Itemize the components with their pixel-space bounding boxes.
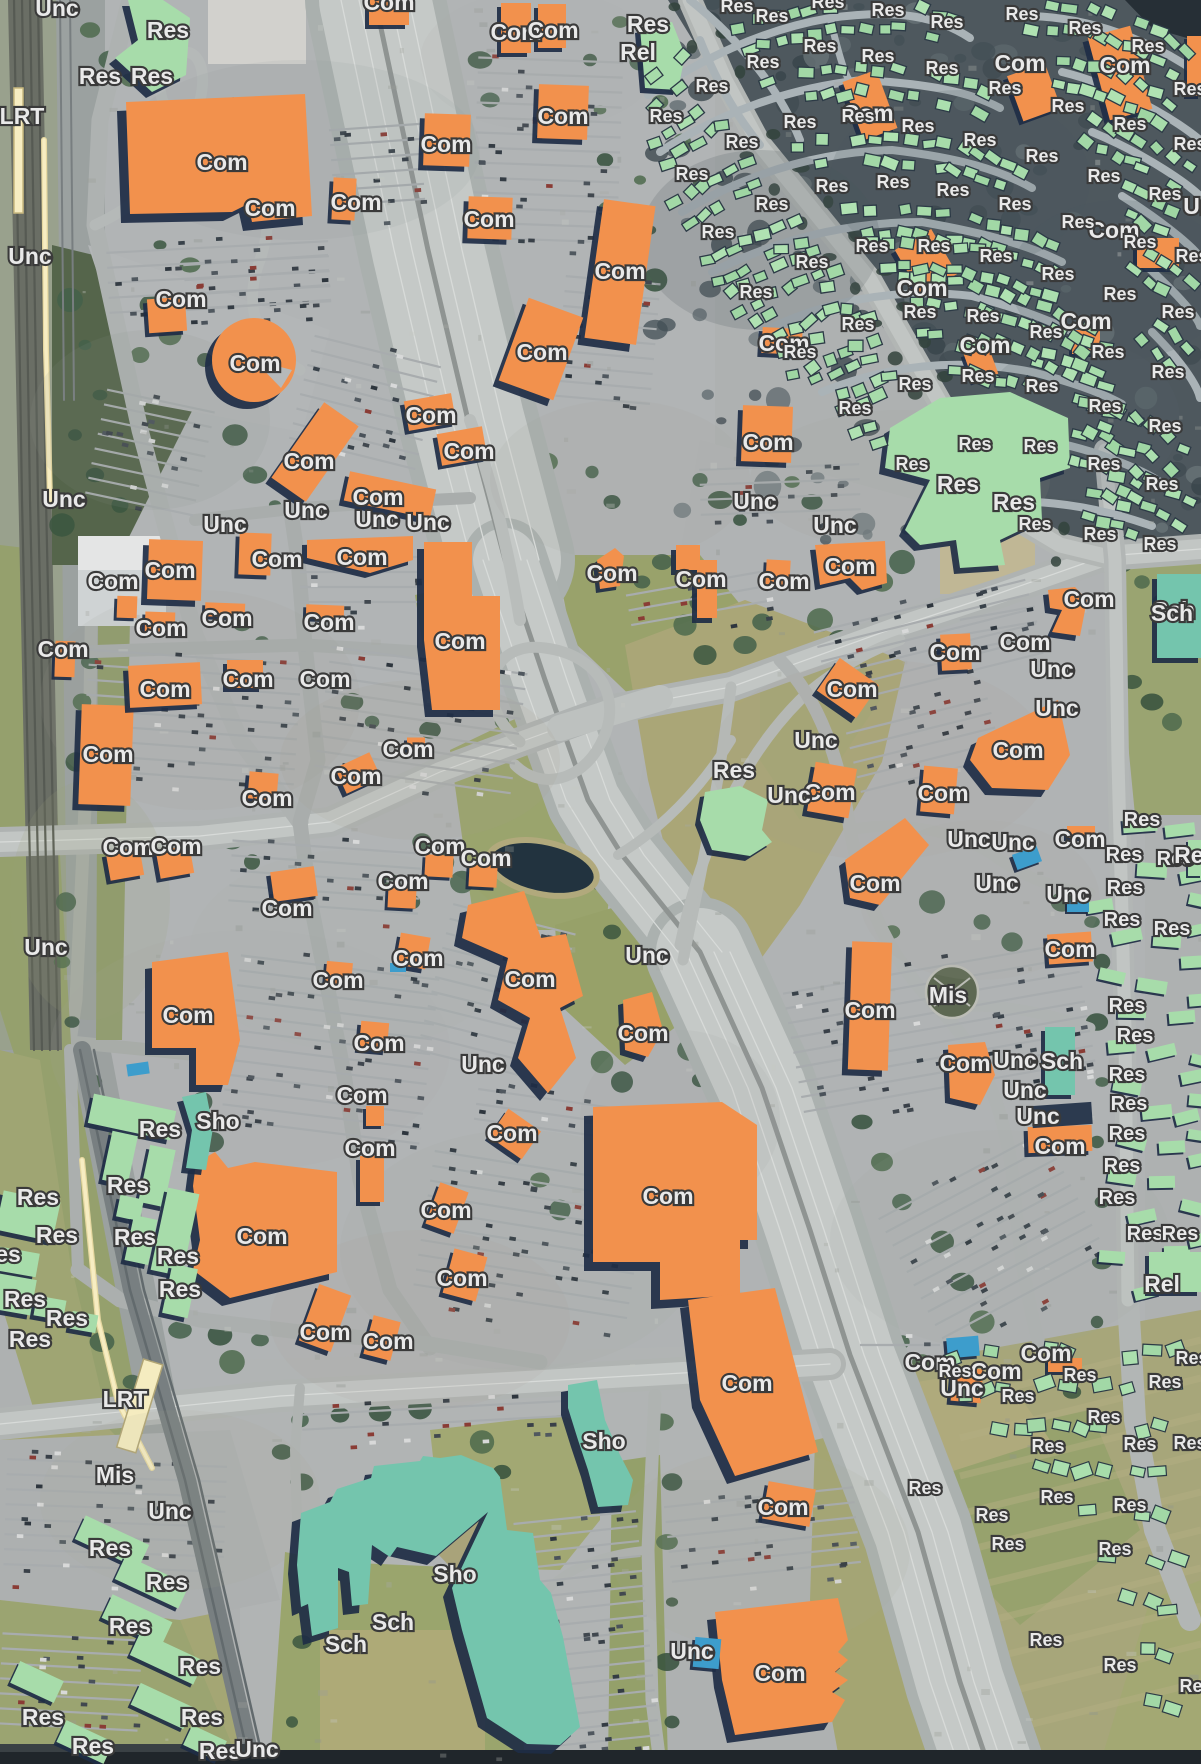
svg-text:Com: Com [135,615,186,641]
svg-text:Res: Res [838,398,871,418]
svg-text:Res: Res [1023,436,1056,456]
svg-text:Res: Res [1175,1348,1201,1368]
svg-text:Res: Res [1018,514,1051,534]
svg-text:Res: Res [1148,416,1181,436]
svg-text:LRT: LRT [103,1386,148,1412]
svg-text:Com: Com [139,676,190,702]
svg-text:Com: Com [420,1197,471,1223]
svg-text:Res: Res [1148,1372,1181,1392]
svg-text:Unc: Unc [733,488,777,514]
svg-text:Com: Com [37,636,88,662]
svg-text:Res: Res [89,1535,131,1561]
svg-text:Com: Com [758,568,809,594]
svg-text:Unc: Unc [24,934,68,960]
svg-text:Com: Com [241,785,292,811]
svg-text:Unc: Unc [461,1051,505,1077]
svg-text:Com: Com [742,429,793,455]
svg-text:Rel: Rel [620,39,656,65]
svg-text:Com: Com [414,833,465,859]
svg-text:Com: Com [1034,1133,1085,1159]
svg-text:Res: Res [783,112,816,132]
svg-text:Com: Com [150,833,201,859]
svg-text:Unc: Unc [203,511,247,537]
svg-text:Com: Com [516,339,567,365]
svg-text:Res: Res [1109,1064,1146,1086]
svg-text:Res: Res [1087,454,1120,474]
svg-text:Res: Res [861,46,894,66]
svg-text:Res: Res [1151,362,1184,382]
svg-text:Res: Res [701,222,734,242]
svg-text:Unc: Unc [991,829,1035,855]
svg-text:Res: Res [157,1243,199,1269]
svg-text:Com: Com [1020,1340,1071,1366]
svg-text:Com: Com [336,1082,387,1108]
svg-text:Unc: Unc [993,1047,1037,1073]
svg-text:Com: Com [303,609,354,635]
svg-text:Unc: Unc [947,826,991,852]
svg-text:Res: Res [1103,1655,1136,1675]
svg-text:Res: Res [871,0,904,20]
svg-text:Com: Com [144,557,195,583]
svg-text:Res: Res [993,489,1035,515]
svg-text:Com: Com [299,1319,350,1345]
svg-text:Mis: Mis [96,1462,134,1488]
svg-text:Unc: Unc [813,512,857,538]
svg-text:Com: Com [102,834,153,860]
svg-text:Unc: Unc [975,870,1019,896]
svg-text:Res: Res [841,106,874,126]
svg-text:Com: Com [201,605,252,631]
svg-text:Res: Res [1124,809,1161,831]
svg-text:Sho: Sho [196,1108,239,1134]
svg-text:Com: Com [87,568,138,594]
svg-text:Unc: Unc [8,243,52,269]
svg-text:Com: Com [251,546,302,572]
svg-text:Res: Res [131,63,173,89]
svg-text:Res: Res [1148,184,1181,204]
svg-text:Res: Res [1113,114,1146,134]
svg-text:Com: Com [377,868,428,894]
svg-text:Com: Com [642,1183,693,1209]
svg-text:Com: Com [222,666,273,692]
svg-text:Res: Res [1068,18,1101,38]
svg-text:Com: Com [992,737,1043,763]
svg-text:Com: Com [229,350,280,376]
svg-text:Res: Res [1025,376,1058,396]
svg-text:Com: Com [824,553,875,579]
svg-text:Unc: Unc [767,782,811,808]
svg-text:Sho: Sho [433,1561,476,1587]
svg-text:Unc: Unc [1030,656,1074,682]
svg-text:Com: Com [312,967,363,993]
svg-text:Res: Res [1087,166,1120,186]
svg-text:Res: Res [811,0,844,12]
svg-text:Res: Res [1104,909,1141,931]
svg-text:Unc: Unc [35,0,79,21]
svg-text:Res: Res [675,164,708,184]
svg-text:Com: Com [721,1370,772,1396]
svg-text:Res: Res [1131,36,1164,56]
svg-text:Res: Res [1162,1223,1199,1245]
svg-text:Res: Res [22,1704,64,1730]
svg-text:Res: Res [895,454,928,474]
svg-text:Res: Res [1025,146,1058,166]
svg-text:Res: Res [876,172,909,192]
svg-text:Res: Res [803,36,836,56]
svg-text:Com: Com [299,666,350,692]
svg-text:Res: Res [159,1276,201,1302]
svg-text:Res: Res [36,1222,78,1248]
svg-text:Res: Res [975,1505,1008,1525]
svg-text:Com: Com [420,131,471,157]
svg-text:Com: Com [504,966,555,992]
svg-text:Res: Res [1083,524,1116,544]
svg-text:Com: Com [959,332,1010,358]
svg-text:Unc: Unc [42,486,86,512]
svg-text:Unc: Unc [1003,1077,1047,1103]
svg-text:Com: Com [486,1120,537,1146]
svg-text:Com: Com [362,1328,413,1354]
svg-text:Res: Res [1098,1539,1131,1559]
svg-text:Res: Res [1029,322,1062,342]
svg-text:Res: Res [649,106,682,126]
svg-text:Com: Com [82,741,133,767]
svg-text:Res: Res [755,6,788,26]
svg-text:Res: Res [938,1361,971,1381]
svg-text:Res: Res [1143,534,1176,554]
svg-text:Res: Res [139,1116,181,1142]
svg-text:Res: Res [966,306,999,326]
svg-text:Res: Res [1040,1487,1073,1507]
svg-text:Res: Res [1109,1123,1146,1145]
svg-text:Rel: Rel [1174,842,1201,868]
svg-text:Res: Res [179,1653,221,1679]
svg-text:Res: Res [963,130,996,150]
svg-text:Res: Res [1154,918,1191,940]
svg-text:Com: Com [537,103,588,129]
svg-text:Com: Com [436,1265,487,1291]
svg-text:Com: Com [392,945,443,971]
svg-text:Res: Res [783,342,816,362]
svg-text:Res: Res [1061,212,1094,232]
svg-text:Unc: Unc [235,1736,279,1762]
svg-text:Res: Res [1103,284,1136,304]
svg-text:Res: Res [1161,302,1194,322]
svg-text:Res: Res [181,1704,223,1730]
svg-text:Res: Res [1117,1025,1154,1047]
svg-text:Com: Com [363,0,414,15]
svg-text:Unc: Unc [148,1498,192,1524]
svg-text:Ur: Ur [1183,193,1201,219]
svg-text:Res: Res [1104,1155,1141,1177]
svg-text:Com: Com [929,639,980,665]
svg-text:Com: Com [1060,308,1111,334]
svg-text:Res: Res [147,17,189,43]
svg-text:Res: Res [855,236,888,256]
svg-text:Com: Com [675,566,726,592]
svg-text:Res: Res [1123,1434,1156,1454]
svg-text:Res: Res [1051,96,1084,116]
svg-text:Unc: Unc [794,727,838,753]
svg-text:Com: Com [353,1030,404,1056]
svg-text:Res: Res [901,116,934,136]
svg-text:Res: Res [991,1534,1024,1554]
svg-text:Res: Res [1111,1093,1148,1115]
svg-text:Res: Res [917,236,950,256]
svg-text:Res: Res [930,12,963,32]
svg-text:Res: Res [1001,1386,1034,1406]
svg-text:Res: Res [1091,342,1124,362]
svg-text:Com: Com [244,195,295,221]
svg-text:Res: Res [746,52,779,72]
svg-text:Res: Res [815,176,848,196]
svg-text:Unc: Unc [406,509,450,535]
svg-text:Sch: Sch [1151,600,1193,626]
svg-text:Com: Com [999,629,1050,655]
svg-text:Res: Res [72,1733,114,1759]
svg-text:Res: Res [1099,1187,1136,1209]
svg-text:Res: Res [936,180,969,200]
svg-text:Res: Res [1127,1223,1164,1245]
svg-text:Com: Com [460,845,511,871]
svg-text:Res: Res [998,194,1031,214]
svg-text:Com: Com [527,17,578,43]
svg-text:Res: Res [725,132,758,152]
svg-text:Res: Res [114,1224,156,1250]
svg-text:Res: Res [1123,232,1156,252]
svg-text:Res: Res [979,246,1012,266]
svg-text:Res: Res [755,194,788,214]
svg-text:Res: Res [1109,995,1146,1017]
svg-text:Com: Com [994,50,1045,76]
svg-text:Com: Com [155,286,206,312]
svg-text:Res: Res [1029,1630,1062,1650]
svg-text:Com: Com [344,1135,395,1161]
svg-text:Res: Res [937,471,979,497]
svg-text:Unc: Unc [1016,1103,1060,1129]
svg-text:Unc: Unc [1035,695,1079,721]
svg-text:Res: Res [1087,1407,1120,1427]
svg-text:Res: Res [925,58,958,78]
svg-text:Unc: Unc [1046,881,1090,907]
svg-text:Res: Res [795,252,828,272]
svg-text:Res: Res [1145,474,1178,494]
svg-text:Com: Com [1054,826,1105,852]
svg-text:Res: Res [146,1569,188,1595]
svg-text:Com: Com [283,448,334,474]
svg-text:Res: Res [1173,134,1201,154]
svg-text:Sho: Sho [582,1428,625,1454]
svg-text:Com: Com [844,997,895,1023]
svg-text:Com: Com [594,258,645,284]
svg-text:Res: Res [109,1613,151,1639]
svg-text:Com: Com [586,560,637,586]
svg-text:Res: Res [1106,844,1143,866]
svg-text:Rel: Rel [1144,1271,1180,1297]
svg-text:Res: Res [720,0,753,16]
svg-text:Res: Res [903,302,936,322]
svg-text:Res: Res [739,282,772,302]
svg-text:Res: Res [4,1286,46,1312]
svg-text:Res: Res [627,11,669,37]
svg-text:Mis: Mis [929,982,967,1008]
svg-text:Com: Com [330,189,381,215]
svg-text:Unc: Unc [284,497,328,523]
svg-text:Res: Res [1179,1676,1201,1696]
svg-text:Res: Res [1041,264,1074,284]
svg-text:Res: Res [958,434,991,454]
svg-text:Com: Com [849,870,900,896]
svg-text:Com: Com [463,206,514,232]
svg-text:Com: Com [754,1660,805,1686]
svg-text:Com: Com [330,763,381,789]
svg-text:Res: Res [9,1326,51,1352]
svg-text:Res: Res [961,366,994,386]
svg-text:Com: Com [405,402,456,428]
svg-text:Res: Res [1031,1436,1064,1456]
svg-text:Com: Com [826,676,877,702]
svg-text:Res: Res [988,78,1021,98]
svg-text:Res: Res [1063,1365,1096,1385]
svg-text:Res: Res [1088,396,1121,416]
svg-text:Res: Res [713,757,755,783]
svg-text:Res: Res [1173,79,1201,99]
svg-text:Com: Com [261,895,312,921]
svg-text:Res: Res [17,1184,59,1210]
svg-text:Sch: Sch [372,1609,414,1635]
svg-text:Res: Res [1005,4,1038,24]
svg-text:Sch: Sch [325,1631,367,1657]
svg-text:Com: Com [162,1002,213,1028]
svg-text:Res: Res [1173,1433,1201,1453]
svg-text:Res: Res [1107,877,1144,899]
svg-text:Res: Res [46,1305,88,1331]
svg-text:Com: Com [336,544,387,570]
svg-text:Com: Com [917,780,968,806]
svg-text:Res: Res [107,1172,149,1198]
svg-text:Com: Com [196,149,247,175]
svg-text:es: es [0,1241,21,1267]
svg-text:Res: Res [79,63,121,89]
svg-text:Com: Com [236,1223,287,1249]
svg-text:LRT: LRT [0,103,44,129]
svg-text:Com: Com [443,438,494,464]
svg-text:Res: Res [1113,1495,1146,1515]
svg-text:Unc: Unc [625,942,669,968]
svg-text:Res: Res [908,1478,941,1498]
svg-text:Res: Res [1175,246,1201,266]
svg-text:Com: Com [896,275,947,301]
svg-text:Res: Res [898,374,931,394]
svg-text:Res: Res [841,314,874,334]
svg-text:Unc: Unc [355,506,399,532]
svg-text:Com: Com [617,1020,668,1046]
svg-text:Com: Com [434,628,485,654]
svg-text:Com: Com [1044,936,1095,962]
svg-text:Res: Res [695,76,728,96]
svg-text:Com: Com [1063,586,1114,612]
svg-text:Unc: Unc [670,1638,714,1664]
svg-text:Sch: Sch [1041,1048,1083,1074]
svg-text:Com: Com [939,1050,990,1076]
svg-text:Com: Com [757,1494,808,1520]
svg-text:Com: Com [804,779,855,805]
svg-text:Com: Com [382,736,433,762]
